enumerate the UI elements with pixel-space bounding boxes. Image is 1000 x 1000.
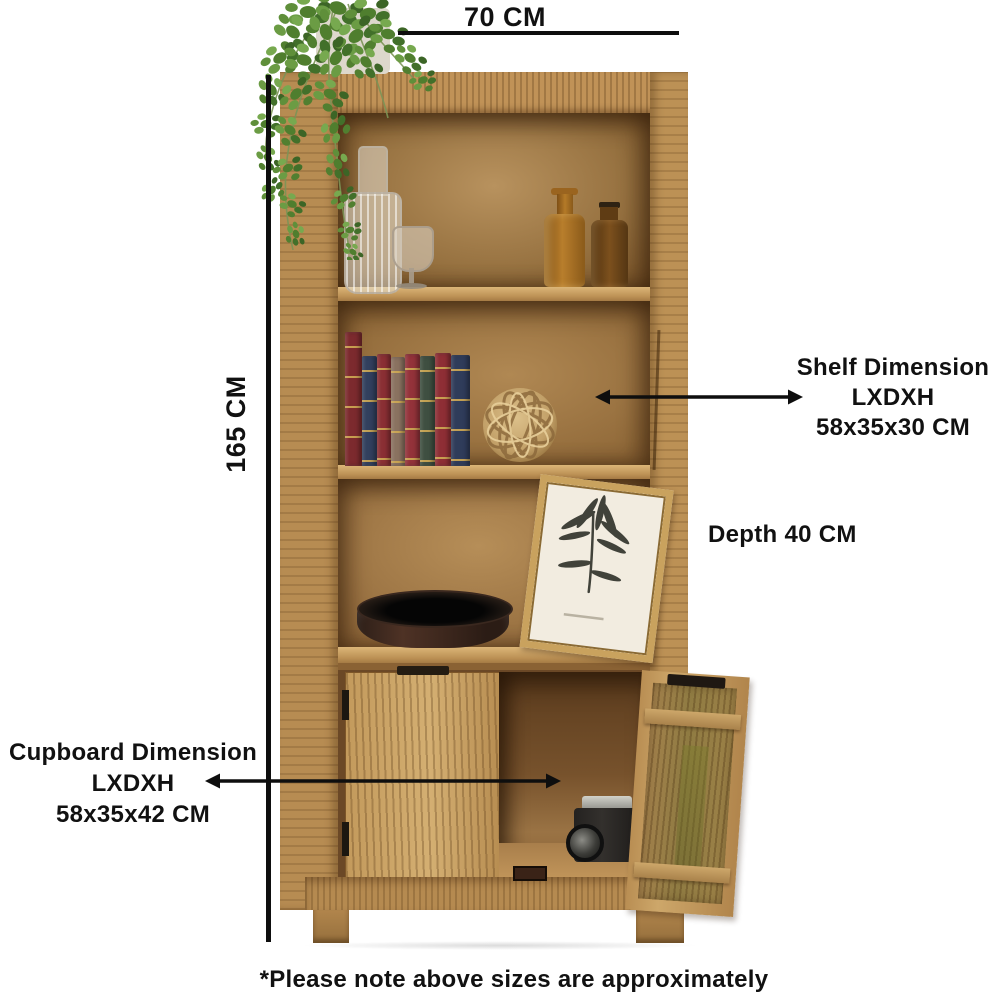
height-label: 165 CM [221,344,251,504]
cupboard-dimension-arrow-icon [203,770,563,792]
shelf-dimension-title: Shelf Dimension [773,353,1000,383]
goblet-foot [396,283,427,289]
botanical-print [529,482,652,640]
height-dimension-line-icon [266,75,271,942]
brown-bottle-neck [600,207,618,221]
depth-label: Depth 40 CM [708,521,857,549]
cabinet-right-leg [636,908,684,943]
shelf-dimension-label: Shelf Dimension LXDXH 58x35x30 CM [773,353,1000,443]
size-disclaimer-note: *Please note above sizes are approximate… [0,966,1000,994]
cupboard-dimension-title: Cupboard Dimension [8,737,258,768]
product-dimension-diagram: 70 CM 165 CM Shelf Dimension LXDXH 58x35… [0,0,1000,1000]
bowl-opening [357,590,513,628]
cupboard-door-open [625,670,749,917]
door-hinge-icon [342,822,349,856]
book-spine [362,356,377,466]
cabinet-base-rail [305,877,677,910]
cabinet-left-leg [313,910,349,943]
shelf-dimension-size: 58x35x30 CM [773,413,1000,443]
amber-bottle [544,214,585,287]
camera-lens-icon [566,824,604,862]
picture-frame [519,474,673,663]
book-spine [377,354,391,466]
shelf-dimension-format: LXDXH [773,383,1000,413]
cupboard-top-rail [338,663,650,670]
width-dimension-line-icon [398,31,679,35]
goblet-stem [409,268,414,283]
book-spine [345,332,362,466]
book-spine [391,357,405,466]
wicker-ball [482,384,558,466]
door-panel-stain [674,745,708,867]
cupboard-dimension-size: 58x35x42 CM [8,799,258,830]
door-hinge-icon [342,690,349,720]
closed-door-handle-icon [397,666,449,675]
book-spine [451,355,470,466]
width-label: 70 CM [405,2,605,33]
book-spine [405,354,420,466]
amber-bottle-neck [557,194,573,216]
door-catch-icon [513,866,547,881]
book-spine [435,353,451,466]
brown-bottle [591,220,628,287]
book-spine [420,356,435,466]
